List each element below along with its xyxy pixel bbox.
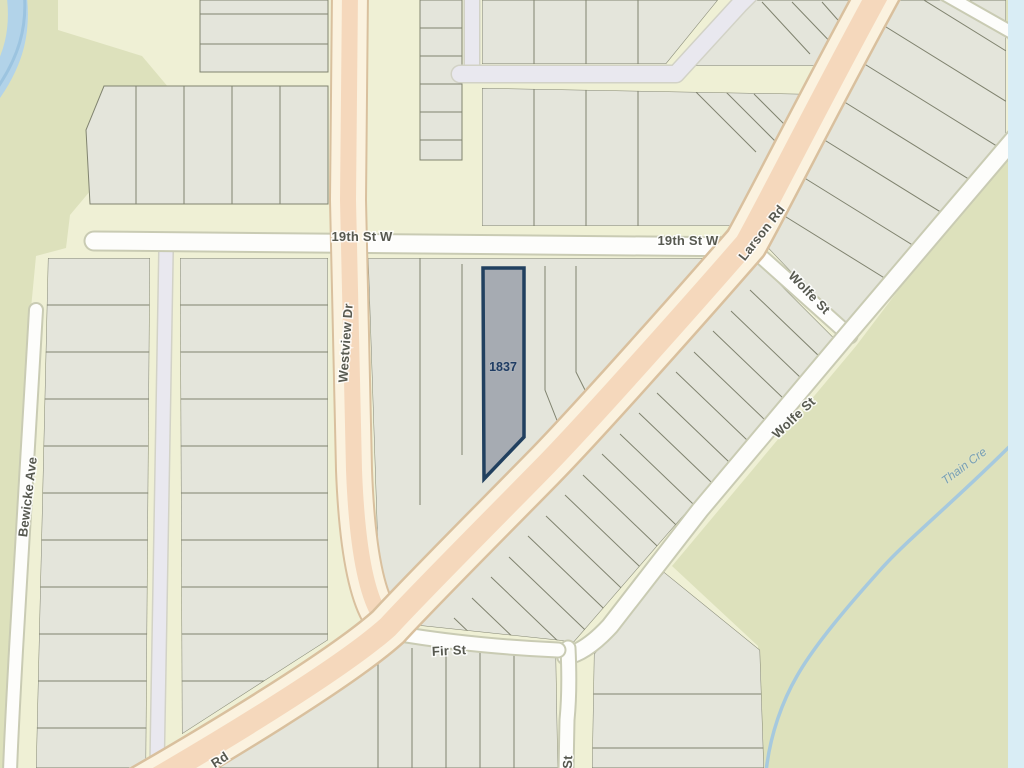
road-19th-st-w bbox=[94, 241, 752, 247]
street-label-19th-st-w-right: 19th St W bbox=[657, 233, 719, 248]
road-wolfe-st-south bbox=[566, 648, 569, 768]
block bbox=[36, 258, 150, 768]
map-edge-strip bbox=[1008, 0, 1024, 768]
parcel-map: 19th St W 19th St W Westview Dr Bewicke … bbox=[0, 0, 1024, 768]
map-canvas[interactable]: 19th St W 19th St W Westview Dr Bewicke … bbox=[0, 0, 1024, 768]
street-label-wolfe-st-partial: St bbox=[560, 755, 575, 768]
block bbox=[86, 86, 328, 204]
street-label-19th-st-w-left: 19th St W bbox=[331, 229, 393, 244]
street-label-fir-st: Fir St bbox=[431, 642, 467, 659]
lane-vertical-mid bbox=[157, 252, 166, 768]
block bbox=[200, 0, 328, 72]
parcel-1837-label: 1837 bbox=[489, 360, 517, 374]
